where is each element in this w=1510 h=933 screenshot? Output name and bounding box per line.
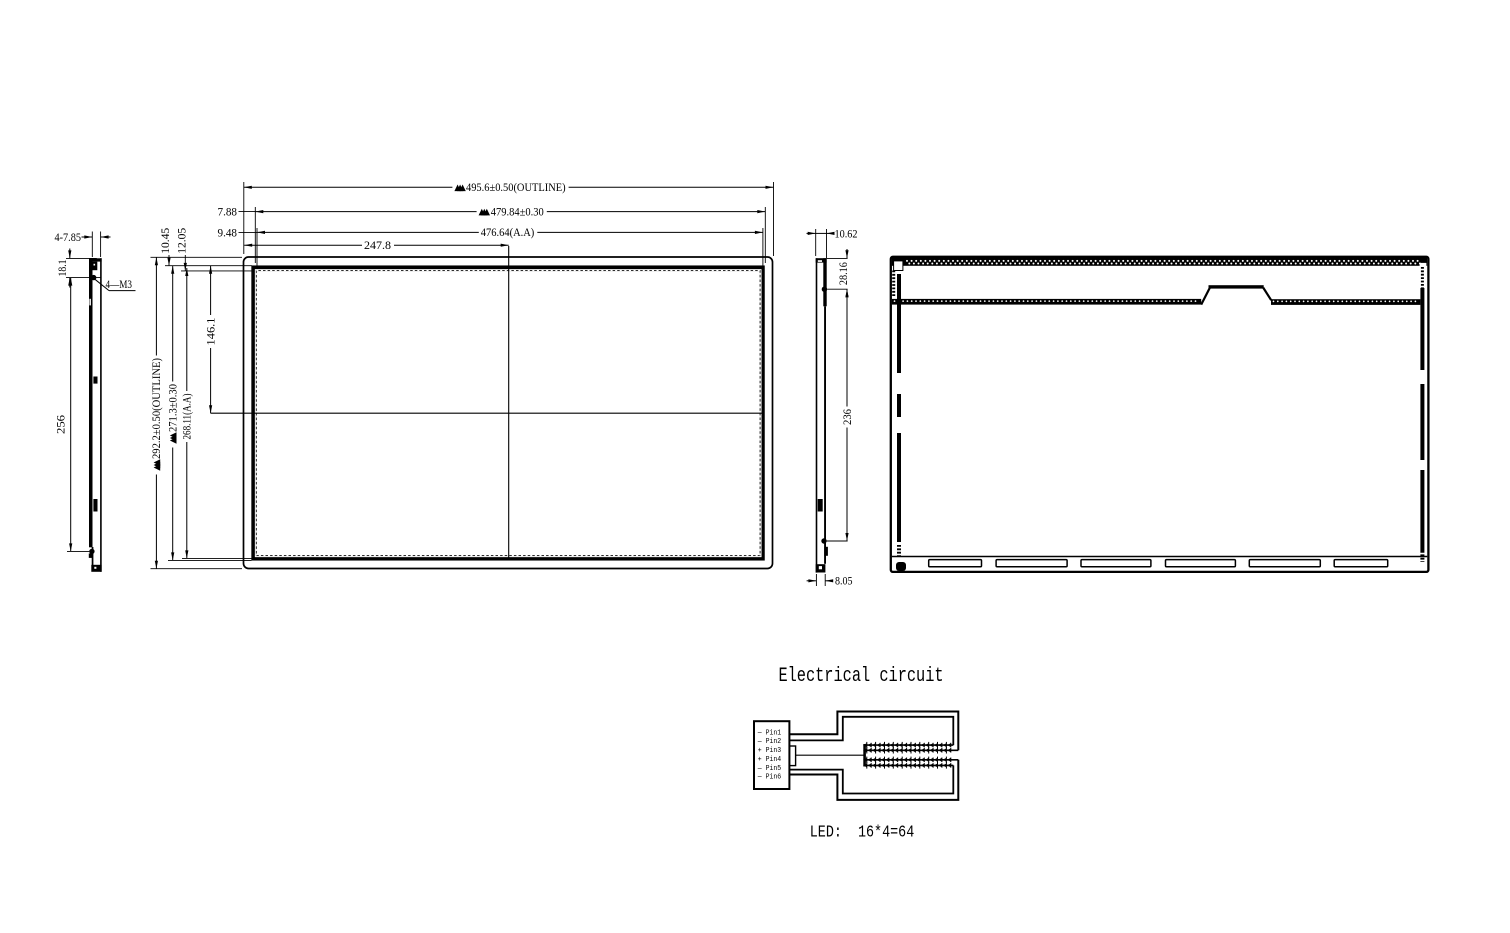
svg-text:476.64(A.A): 476.64(A.A) xyxy=(481,225,535,239)
svg-text:256: 256 xyxy=(54,415,68,434)
svg-text:4-7.85: 4-7.85 xyxy=(55,230,82,244)
svg-text:10.45: 10.45 xyxy=(158,228,172,254)
svg-text:495.6±0.50(OUTLINE): 495.6±0.50(OUTLINE) xyxy=(466,180,566,194)
svg-text:— Pin6: — Pin6 xyxy=(757,774,781,782)
svg-text:Electrical circuit: Electrical circuit xyxy=(778,665,943,687)
svg-text:271.3±0.30: 271.3±0.30 xyxy=(166,384,180,432)
svg-text:9.48: 9.48 xyxy=(218,225,238,239)
svg-text:12.05: 12.05 xyxy=(174,228,188,254)
svg-text:— Pin1: — Pin1 xyxy=(757,729,782,737)
svg-text:7.88: 7.88 xyxy=(218,205,238,219)
svg-text:18.1: 18.1 xyxy=(55,260,69,277)
svg-text:10.62: 10.62 xyxy=(835,226,858,240)
svg-text:268.11(A.A): 268.11(A.A) xyxy=(180,394,194,440)
svg-text:+ Pin4: + Pin4 xyxy=(758,756,782,764)
svg-text:236: 236 xyxy=(840,409,854,425)
svg-text:— Pin5: — Pin5 xyxy=(757,765,781,773)
svg-text:4—M3: 4—M3 xyxy=(106,277,133,291)
svg-text:292.2±0.50(OUTLINE): 292.2±0.50(OUTLINE) xyxy=(149,358,163,459)
svg-text:+ Pin3: + Pin3 xyxy=(758,747,781,755)
svg-text:479.84±0.30: 479.84±0.30 xyxy=(491,204,544,218)
svg-text:8.05: 8.05 xyxy=(835,574,853,588)
svg-text:28.16: 28.16 xyxy=(836,262,850,285)
svg-text:247.8: 247.8 xyxy=(364,238,391,252)
svg-text:LED: 16*4=64: LED: 16*4=64 xyxy=(810,824,915,841)
svg-text:146.1: 146.1 xyxy=(203,318,217,346)
svg-text:— Pin2: — Pin2 xyxy=(757,738,781,746)
